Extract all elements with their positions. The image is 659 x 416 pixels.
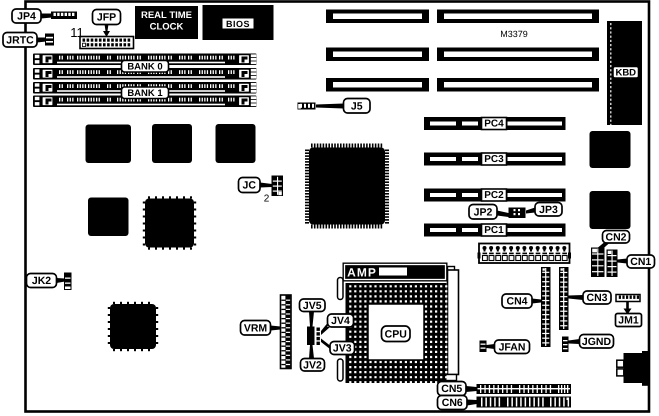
svg-text:CN1: CN1 [630, 256, 651, 268]
svg-text:BIOS: BIOS [226, 19, 250, 29]
svg-text:M3379: M3379 [500, 29, 528, 39]
svg-text:JFAN: JFAN [499, 341, 526, 353]
svg-text:BANK 0: BANK 0 [127, 61, 162, 72]
svg-text:AMP: AMP [347, 266, 377, 280]
svg-text:2: 2 [264, 194, 270, 205]
svg-text:BANK 1: BANK 1 [127, 88, 163, 99]
svg-text:REAL TIME: REAL TIME [141, 10, 192, 21]
svg-text:CN4: CN4 [506, 296, 527, 308]
svg-text:VRM: VRM [244, 322, 268, 334]
svg-text:JV5: JV5 [303, 300, 322, 312]
svg-text:PC1: PC1 [484, 225, 504, 236]
svg-text:J5: J5 [351, 100, 363, 112]
svg-text:JP2: JP2 [474, 206, 493, 218]
svg-text:JV2: JV2 [303, 359, 322, 371]
svg-text:JRTC: JRTC [6, 34, 34, 46]
svg-text:JFP: JFP [97, 12, 116, 24]
svg-text:JV3: JV3 [333, 343, 352, 355]
svg-text:CN2: CN2 [605, 231, 626, 243]
svg-text:JGND: JGND [582, 336, 612, 348]
svg-text:CN6: CN6 [442, 397, 463, 409]
svg-text:JP3: JP3 [539, 204, 558, 216]
svg-text:JM1: JM1 [618, 315, 639, 327]
svg-text:JV4: JV4 [331, 315, 350, 327]
svg-text:KBD: KBD [615, 67, 636, 78]
svg-text:PC2: PC2 [484, 190, 504, 201]
svg-text:PC4: PC4 [484, 119, 504, 130]
svg-text:CN3: CN3 [586, 292, 607, 304]
svg-text:CLOCK: CLOCK [150, 22, 184, 33]
svg-text:JP4: JP4 [17, 11, 36, 23]
svg-text:PC3: PC3 [484, 154, 504, 165]
svg-text:CN5: CN5 [441, 383, 462, 395]
svg-text:CPU: CPU [385, 328, 407, 340]
svg-text:JC: JC [243, 180, 257, 192]
svg-text:JK2: JK2 [32, 275, 51, 287]
